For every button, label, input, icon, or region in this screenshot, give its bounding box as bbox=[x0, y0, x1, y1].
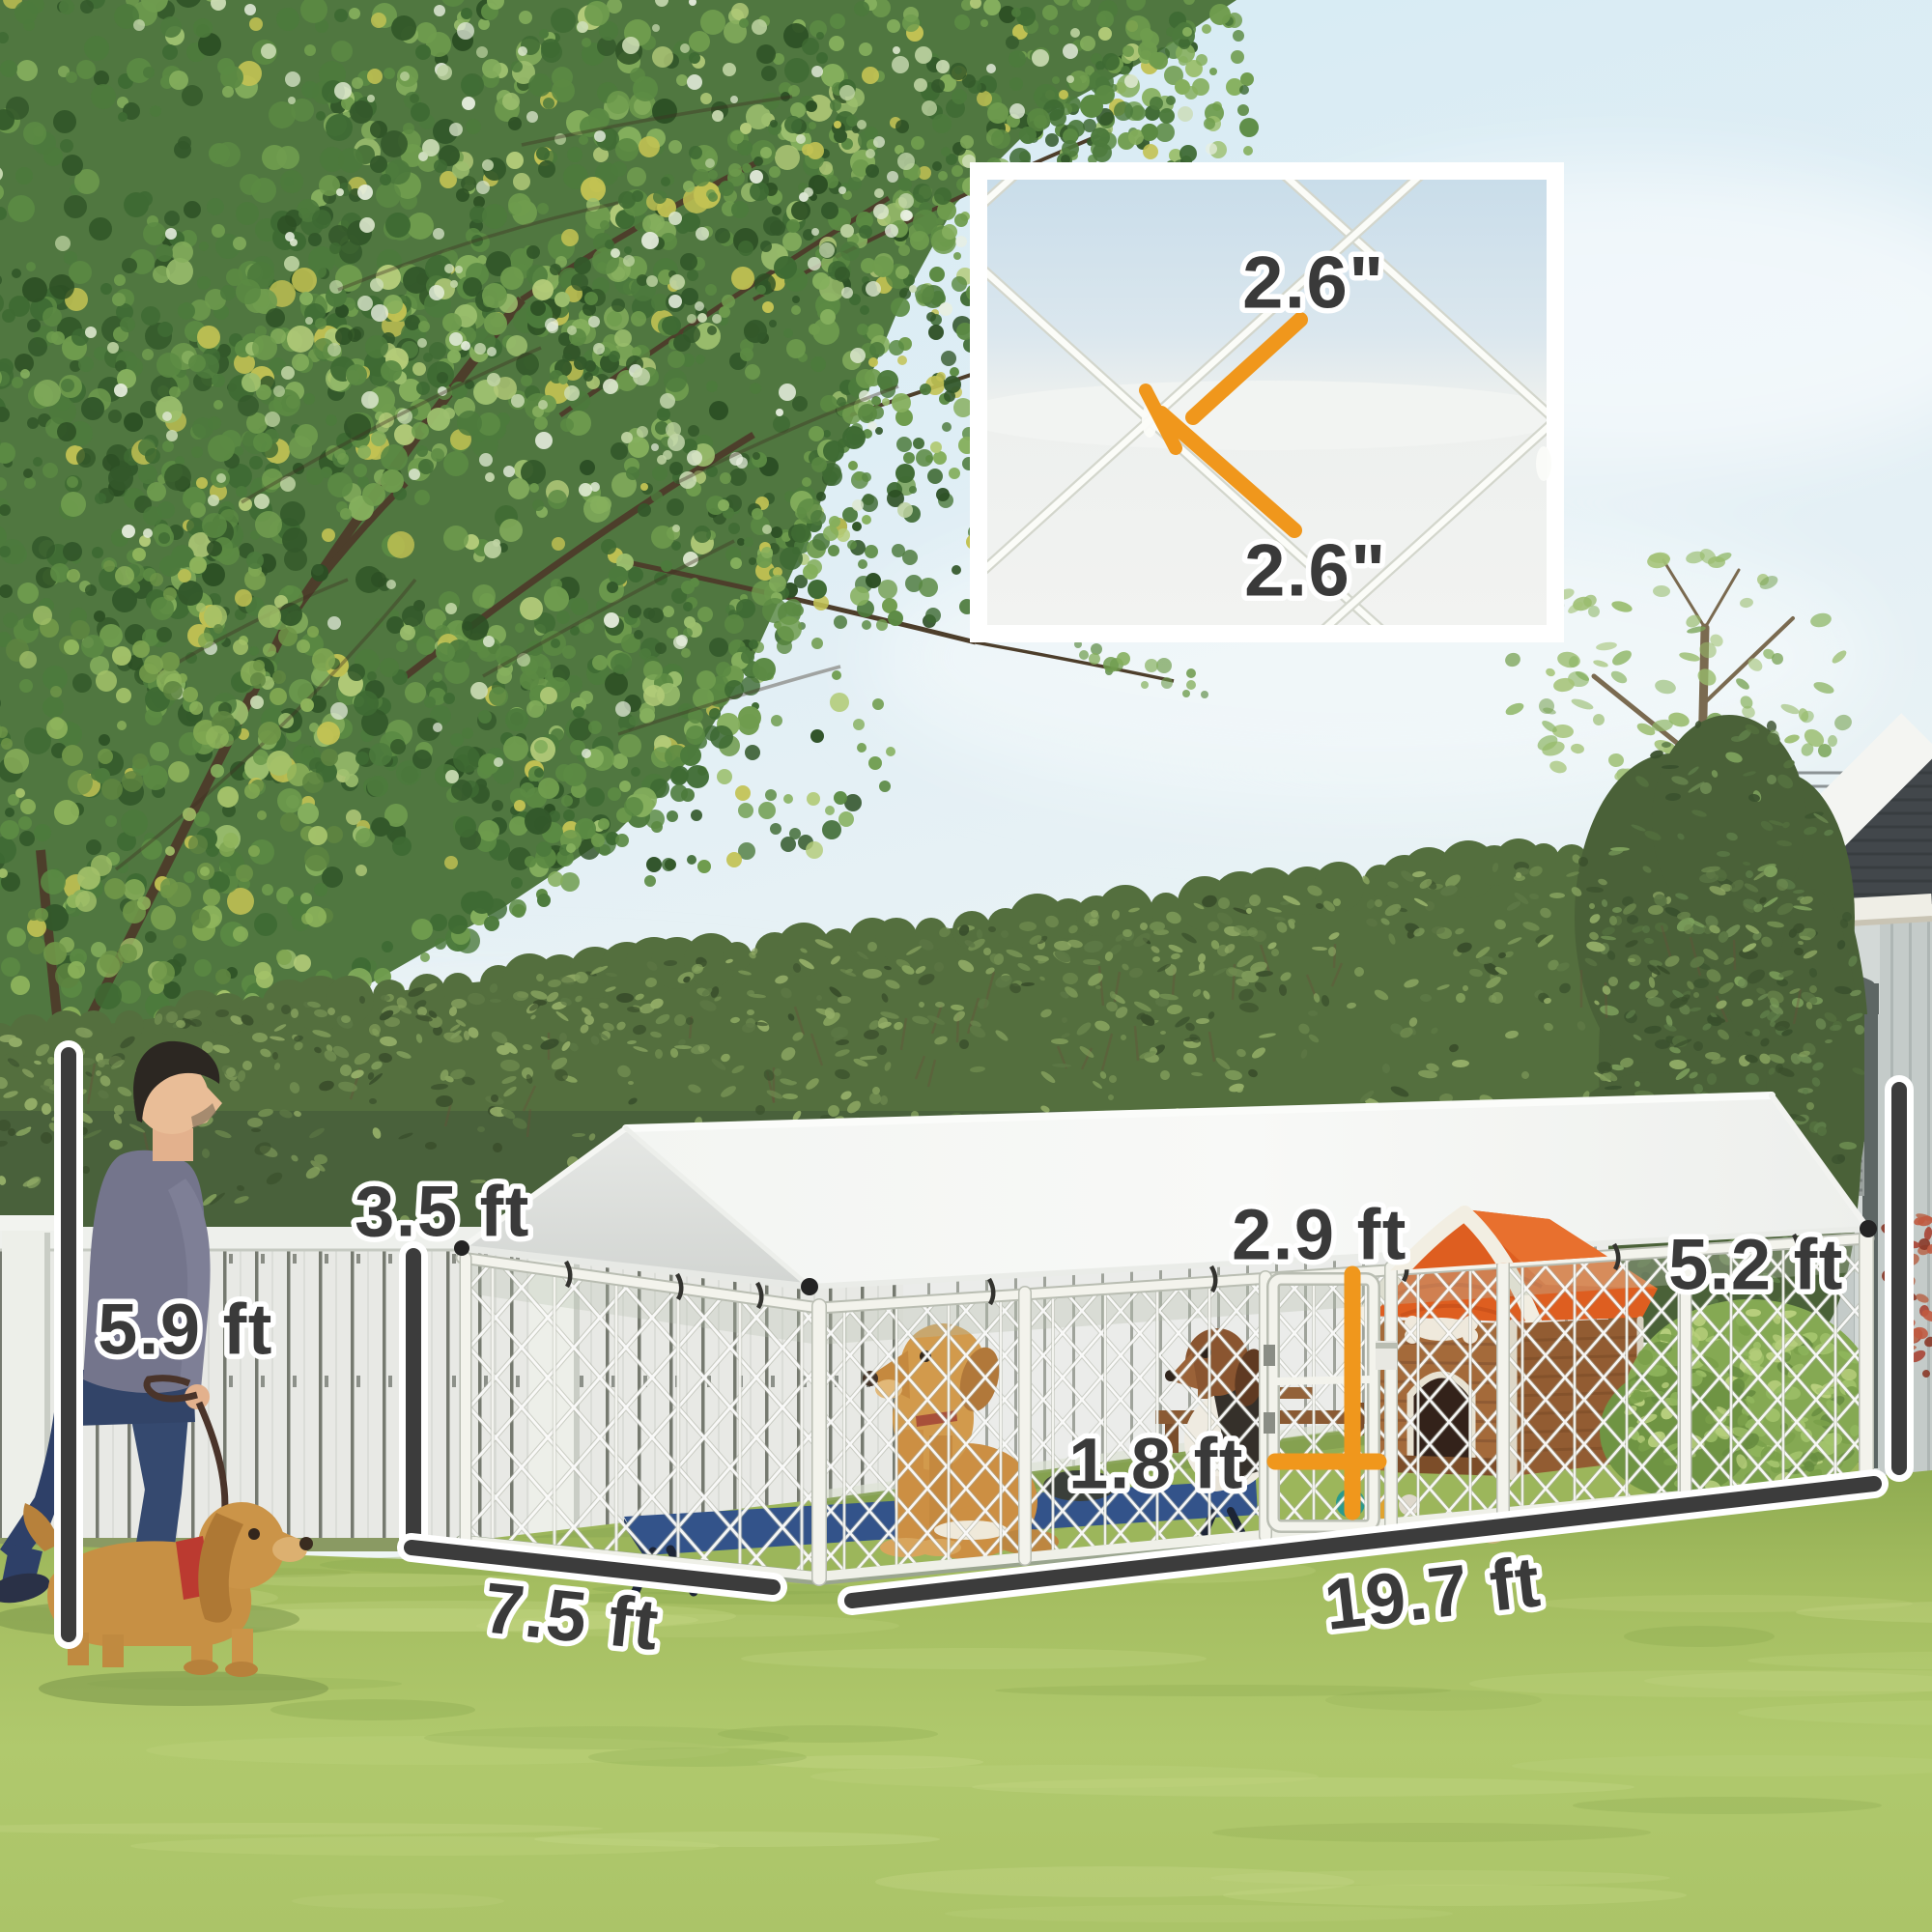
svg-text:3.5 ft: 3.5 ft bbox=[355, 1172, 530, 1252]
svg-text:1.8 ft: 1.8 ft bbox=[1068, 1424, 1244, 1504]
svg-text:2.6": 2.6" bbox=[1242, 241, 1385, 324]
svg-text:5.9 ft: 5.9 ft bbox=[98, 1290, 273, 1370]
svg-text:2.6": 2.6" bbox=[1244, 529, 1387, 611]
svg-text:2.9 ft: 2.9 ft bbox=[1232, 1195, 1407, 1275]
svg-text:5.2 ft: 5.2 ft bbox=[1668, 1225, 1844, 1305]
